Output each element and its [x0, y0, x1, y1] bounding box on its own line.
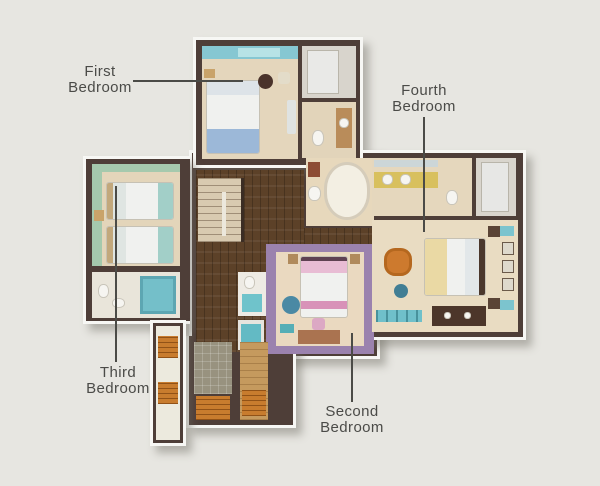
label-text: Second: [306, 404, 398, 420]
first-bedroom-nightstand: [204, 69, 215, 78]
picture-frame: [502, 278, 514, 291]
leader-line-second-bedroom: [351, 333, 353, 402]
fourth-bedroom-armchair: [384, 248, 412, 276]
first-bedroom-round-table: [258, 74, 273, 89]
bathroom-mirror: [374, 160, 438, 167]
label-text: Bedroom: [54, 80, 146, 96]
second-bedroom-chair: [312, 318, 325, 330]
first-bedroom-bench: [287, 100, 296, 134]
toilet: [446, 190, 458, 205]
shower-glass: [481, 162, 509, 212]
second-bedroom-desk: [298, 330, 340, 344]
wall-art: [500, 300, 514, 310]
shower-glass: [307, 50, 339, 94]
sauna-floor-mat: [196, 396, 230, 420]
third-bedroom-accent-wall: [92, 164, 180, 172]
second-bedroom-nightstand: [350, 254, 360, 264]
vanity: [336, 108, 352, 148]
floorplan-canvas: First Bedroom Fourth Bedroom Third Bedro…: [0, 0, 600, 486]
label-second-bedroom: Second Bedroom: [306, 404, 398, 436]
third-bathroom-tub: [140, 276, 176, 314]
sink: [112, 298, 125, 308]
first-bedroom-window: [238, 48, 280, 57]
bathtub: [324, 162, 370, 220]
second-bedroom-nightstand: [288, 254, 298, 264]
fourth-bedroom-stool: [394, 284, 408, 298]
picture-frame: [502, 260, 514, 273]
second-bedroom-rug: [280, 324, 294, 333]
label-text: First: [54, 64, 146, 80]
toilet: [312, 130, 324, 146]
label-fourth-bedroom: Fourth Bedroom: [378, 83, 470, 115]
leader-line-first-bedroom: [133, 80, 243, 82]
first-bedroom-bed: [206, 80, 260, 154]
toilet: [308, 186, 321, 201]
label-text: Bedroom: [306, 420, 398, 436]
toilet: [244, 276, 255, 289]
second-bedroom-bed: [300, 256, 348, 318]
staircase: [198, 178, 244, 242]
fourth-bedroom-nightstand: [488, 298, 500, 309]
toilet: [98, 284, 109, 298]
label-third-bedroom: Third Bedroom: [72, 365, 164, 397]
sauna-floor-mat: [242, 390, 266, 416]
leader-line-third-bedroom: [115, 186, 117, 362]
bathroom-cabinet: [308, 162, 320, 177]
leader-line-fourth-bedroom: [423, 117, 425, 232]
closet-shelf: [158, 336, 178, 358]
fourth-bedroom-bench: [376, 310, 422, 322]
fourth-bedroom-nightstand: [488, 226, 500, 237]
fourth-bedroom-dresser: [432, 306, 486, 326]
bath-mat: [242, 294, 262, 312]
dresser-lamp: [464, 312, 471, 319]
sink: [400, 174, 411, 185]
second-bedroom-armchair: [282, 296, 300, 314]
sauna-shower-room: [194, 342, 232, 394]
label-text: Bedroom: [378, 99, 470, 115]
label-text: Bedroom: [72, 381, 164, 397]
first-bedroom-chair: [278, 72, 290, 84]
stair-railing: [222, 192, 226, 236]
sink: [339, 118, 349, 128]
dresser-lamp: [444, 312, 451, 319]
fourth-bedroom-bed: [424, 238, 486, 296]
label-text: Third: [72, 365, 164, 381]
sink: [382, 174, 393, 185]
picture-frame: [502, 242, 514, 255]
wall-art: [500, 226, 514, 236]
label-first-bedroom: First Bedroom: [54, 64, 146, 96]
label-text: Fourth: [378, 83, 470, 99]
third-bedroom-nightstand: [94, 210, 104, 221]
